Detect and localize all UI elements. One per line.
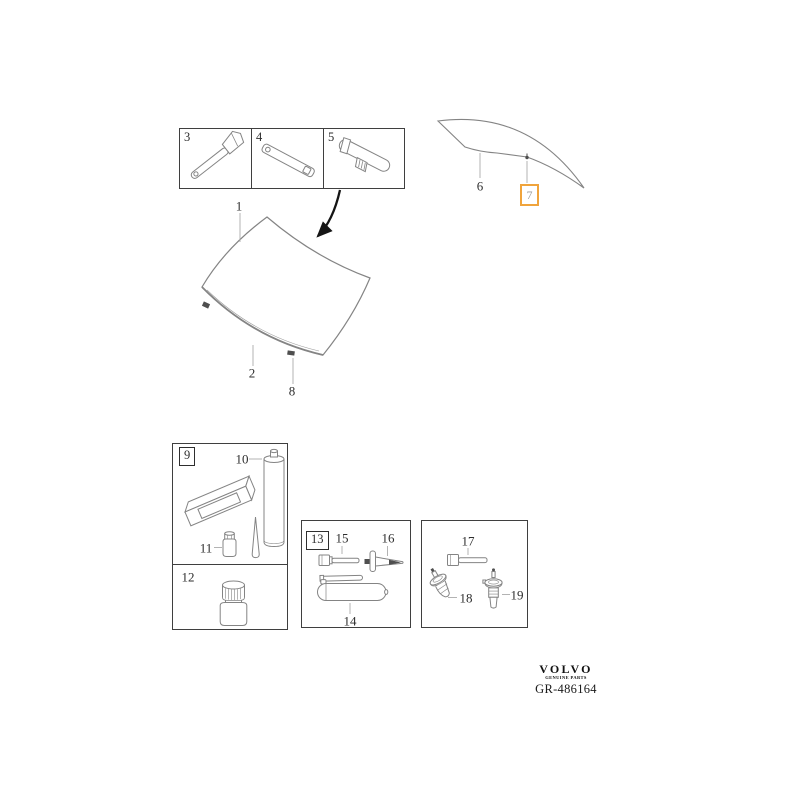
washer-nozzle-right-icon	[483, 568, 502, 608]
callout-18: 18	[460, 592, 473, 605]
callout-16: 16	[382, 532, 395, 545]
windshield-icon	[202, 217, 370, 355]
clip-variants-box: 3 4	[179, 128, 405, 189]
side-glass-icon	[438, 119, 584, 188]
callout-7-label: 7	[527, 189, 533, 201]
callout-12: 12	[182, 571, 195, 584]
callout-13-boxed: 13	[306, 531, 329, 550]
windshield-clip-left-icon	[202, 301, 210, 308]
valve-plug-icon	[365, 551, 404, 572]
callout-7-highlighted[interactable]: 7	[520, 184, 539, 206]
repair-kit-drawings	[173, 444, 287, 629]
callout-19: 19	[511, 589, 524, 602]
adhesive-tube-icon	[318, 575, 388, 600]
callout-8-windshield-clip: 8	[289, 385, 296, 398]
callout-15: 15	[336, 532, 349, 545]
kit-box-divider	[173, 564, 287, 565]
retainer-clip-icon	[324, 129, 403, 188]
screw-17-icon	[448, 555, 488, 566]
callout-5: 5	[328, 131, 334, 144]
callout-3: 3	[184, 131, 190, 144]
activator-bottle-icon	[220, 581, 247, 626]
kit-carton-icon	[182, 476, 258, 526]
callout-17: 17	[462, 535, 475, 548]
brand-block: VOLVO GENUINE PARTS GR-486164	[534, 663, 598, 696]
clip-variant-cell-3: 3	[180, 129, 252, 188]
repair-kit-box: 9 10 11 12	[172, 443, 288, 630]
windshield-outline	[202, 217, 370, 355]
screw-15-icon	[319, 555, 359, 566]
callout-6-side-glass: 6	[477, 180, 484, 193]
main-diagram-canvas	[0, 0, 800, 800]
windshield-clip-bottom-icon	[287, 350, 295, 355]
tool-parts-box: 13 15 16 14	[301, 520, 411, 628]
primer-bottle-icon	[223, 532, 236, 557]
washer-nozzle-left-icon	[424, 564, 455, 600]
clip-variant-cell-4: 4	[252, 129, 324, 188]
clip-variant-cell-5: 5	[324, 129, 404, 188]
nozzle-cone-icon	[252, 517, 259, 558]
applicator-stick-icon	[180, 129, 251, 188]
callout-14: 14	[344, 615, 357, 628]
callout-4: 4	[256, 131, 262, 144]
callout-11: 11	[200, 542, 213, 555]
callout-2-moulding: 2	[249, 367, 256, 380]
callout-10: 10	[236, 453, 249, 466]
nozzle-parts-drawings	[422, 521, 527, 627]
callout-9-boxed: 9	[179, 447, 195, 466]
drawing-reference-number: GR-486164	[534, 683, 598, 696]
retainer-strip-icon	[252, 129, 323, 188]
nozzle-parts-box: 17 18 19	[421, 520, 528, 628]
parts-diagram-page: 1 2 8 6 7 3 4	[0, 0, 800, 800]
install-arrow-icon	[318, 190, 340, 236]
callout-1-windshield: 1	[236, 200, 243, 213]
side-glass-outline	[438, 119, 584, 188]
adhesive-cartridge-icon	[264, 449, 284, 546]
volvo-logo: VOLVO	[534, 663, 598, 675]
